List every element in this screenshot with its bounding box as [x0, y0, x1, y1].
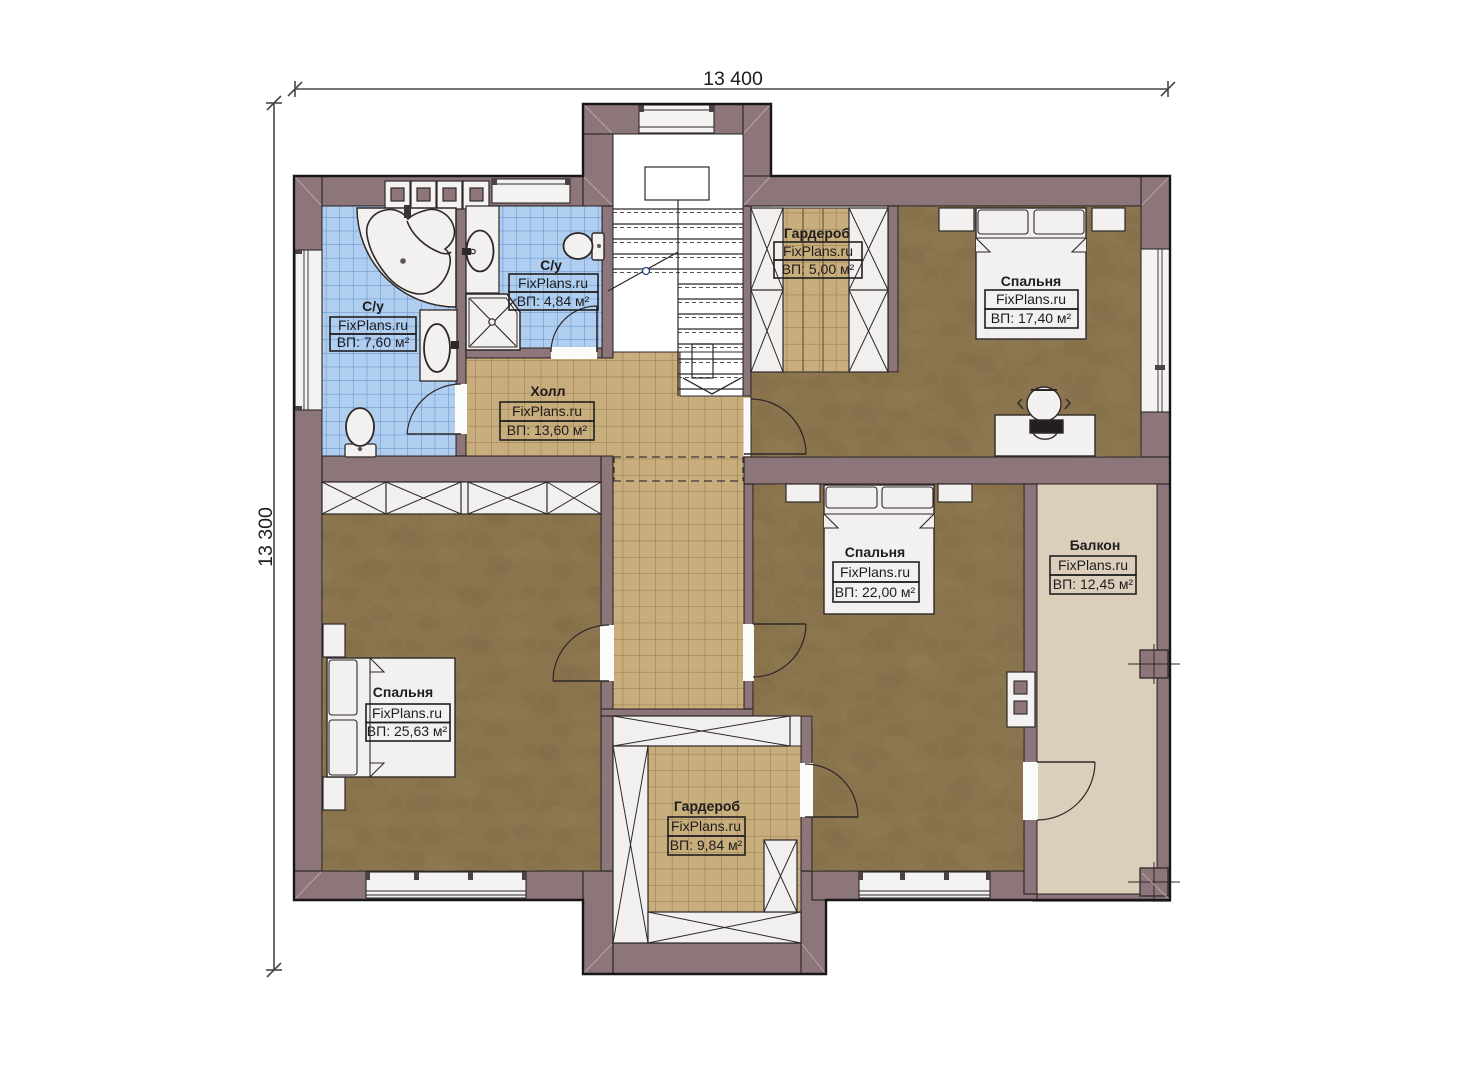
svg-text:ВП: 17,40 м²: ВП: 17,40 м²	[991, 310, 1072, 326]
svg-text:FixPlans.ru: FixPlans.ru	[840, 564, 910, 580]
svg-text:Спальня: Спальня	[845, 544, 905, 560]
svg-text:ВП: 4,84 м²: ВП: 4,84 м²	[517, 293, 590, 309]
svg-text:FixPlans.ru: FixPlans.ru	[783, 243, 853, 259]
svg-text:ВП: 22,00 м²: ВП: 22,00 м²	[835, 584, 916, 600]
svg-text:Гардероб: Гардероб	[674, 798, 741, 814]
svg-text:ВП: 7,60 м²: ВП: 7,60 м²	[337, 334, 410, 350]
svg-text:С/у: С/у	[540, 257, 562, 273]
svg-text:Спальня: Спальня	[373, 684, 433, 700]
svg-text:ВП: 25,63 м²: ВП: 25,63 м²	[367, 723, 448, 739]
svg-text:ВП: 12,45 м²: ВП: 12,45 м²	[1053, 576, 1134, 592]
svg-text:FixPlans.ru: FixPlans.ru	[372, 705, 442, 721]
svg-text:Балкон: Балкон	[1070, 537, 1121, 553]
svg-text:FixPlans.ru: FixPlans.ru	[338, 317, 408, 333]
svg-text:Спальня: Спальня	[1001, 273, 1061, 289]
svg-text:FixPlans.ru: FixPlans.ru	[518, 275, 588, 291]
svg-text:FixPlans.ru: FixPlans.ru	[512, 403, 582, 419]
svg-text:С/у: С/у	[362, 298, 384, 314]
svg-text:13 400: 13 400	[703, 68, 763, 90]
svg-text:ВП: 13,60 м²: ВП: 13,60 м²	[507, 422, 588, 438]
svg-text:Холл: Холл	[530, 383, 565, 399]
svg-text:ВП: 5,00 м²: ВП: 5,00 м²	[782, 261, 855, 277]
svg-text:FixPlans.ru: FixPlans.ru	[996, 291, 1066, 307]
svg-text:FixPlans.ru: FixPlans.ru	[671, 818, 741, 834]
svg-text:Гардероб: Гардероб	[784, 225, 851, 241]
svg-text:ВП: 9,84 м²: ВП: 9,84 м²	[670, 837, 743, 853]
svg-text:13 300: 13 300	[255, 507, 277, 567]
svg-text:FixPlans.ru: FixPlans.ru	[1058, 557, 1128, 573]
